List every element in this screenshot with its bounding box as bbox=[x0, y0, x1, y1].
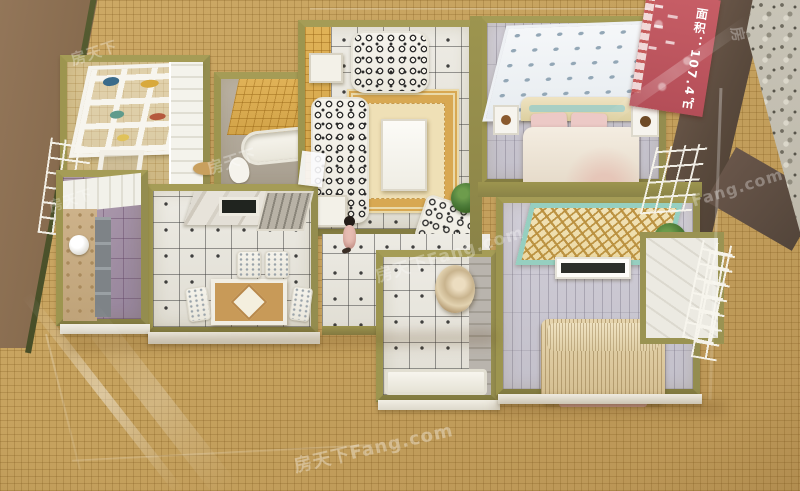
left-bathroom bbox=[56, 170, 148, 326]
dining-table bbox=[211, 279, 287, 325]
model-shadow bbox=[495, 402, 725, 414]
dining-chair bbox=[289, 286, 314, 322]
living-room bbox=[298, 20, 476, 236]
figurine-dress bbox=[343, 225, 356, 249]
nightstand-right bbox=[631, 105, 659, 137]
person-figurine bbox=[340, 216, 358, 264]
wall-connector-vertical bbox=[470, 16, 482, 254]
sliding-door bbox=[256, 191, 314, 231]
bathtub-bottom bbox=[385, 369, 487, 395]
wall-tv bbox=[219, 197, 259, 216]
dining-chair bbox=[185, 286, 212, 323]
table-diamond-inlay bbox=[231, 284, 268, 321]
console-screen bbox=[561, 263, 625, 273]
sign-mark bbox=[655, 4, 663, 8]
cabinet-fronts bbox=[95, 217, 111, 317]
lamp bbox=[640, 116, 651, 127]
headboard-teal-stripe bbox=[529, 105, 625, 112]
nightstand-left bbox=[493, 105, 519, 135]
sign-mark bbox=[654, 24, 663, 28]
shelf-item-yellow bbox=[116, 134, 130, 141]
wall-face bbox=[60, 324, 150, 334]
sign-mark bbox=[665, 40, 674, 44]
dining-chair bbox=[237, 251, 261, 278]
shelf-item-blue bbox=[102, 77, 120, 87]
vanity-counter bbox=[63, 209, 97, 321]
rolled-rug bbox=[435, 265, 475, 313]
photo-of-scale-model: 面积：107.4㎡ 房天下 房天下 房天下 房天下Fang.com Fang.c… bbox=[0, 0, 800, 491]
figurine-shoes bbox=[341, 247, 351, 255]
bottom-bathroom bbox=[376, 250, 498, 402]
armchair bbox=[351, 31, 429, 93]
dining-room bbox=[146, 184, 318, 334]
sign-mark bbox=[667, 14, 677, 19]
coffee-table bbox=[381, 119, 427, 191]
side-table-top bbox=[309, 53, 343, 83]
wall-face bbox=[378, 400, 500, 410]
media-console bbox=[555, 257, 631, 279]
shelf-item-teal bbox=[109, 110, 125, 118]
sign-mark bbox=[648, 46, 656, 50]
shelf-item-gold bbox=[140, 79, 160, 88]
lamp bbox=[501, 115, 511, 125]
white-paper-tag bbox=[298, 151, 326, 188]
sink-basin bbox=[69, 235, 89, 255]
shelf-item-red bbox=[149, 113, 167, 121]
dining-chair bbox=[265, 251, 289, 278]
white-tile-wall bbox=[63, 173, 141, 213]
